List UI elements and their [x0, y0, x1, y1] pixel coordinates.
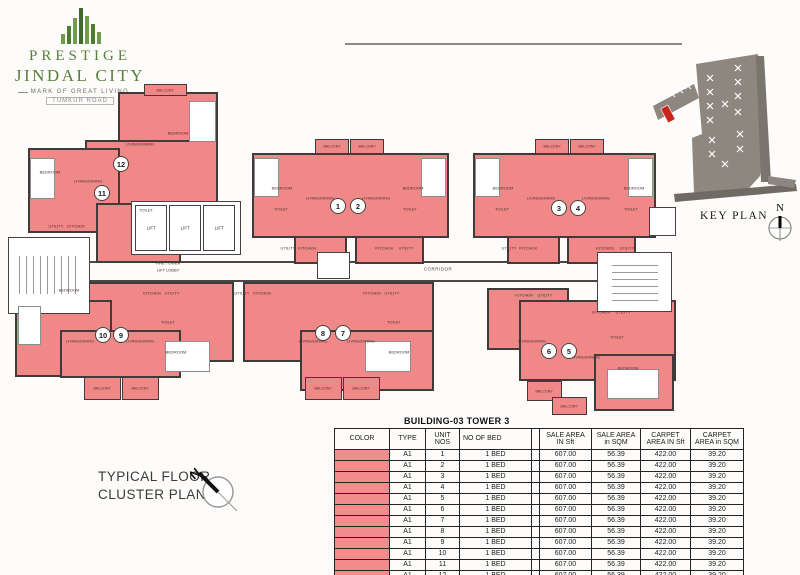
room-label-utility: UTILITY	[538, 293, 553, 298]
table-row: A1121 BED607.0056.39422.0039.20	[335, 571, 744, 575]
balcony-label: BALCONY	[358, 144, 375, 148]
unit-number-marker: 8	[315, 325, 331, 341]
table-cell: 607.00	[540, 483, 592, 494]
table-cell: 39.20	[691, 516, 744, 527]
room-label-kitchen: KITCHEN	[298, 246, 316, 251]
balcony: BALCONY	[350, 139, 384, 154]
table-row: A161 BED607.0056.39422.0039.20	[335, 505, 744, 516]
lift-lobby-room	[317, 252, 350, 279]
room-label-kitchen: KITCHEN	[67, 224, 85, 229]
typical-floor-plan-sheet: PRESTIGE JINDAL CITY MARK OF GREAT LIVIN…	[0, 0, 800, 575]
spacer-cell	[532, 538, 540, 549]
room-label-living: LIVING/DINING	[126, 339, 154, 344]
room-label-utility: UTILITY	[165, 291, 180, 296]
table-row: A131 BED607.0056.39422.0039.20	[335, 472, 744, 483]
stair-steps	[612, 261, 658, 301]
room-label-bedroom: BEDROOM	[168, 131, 189, 136]
unit-number-marker: 2	[350, 198, 366, 214]
room-label-bedroom: BEDROOM	[272, 186, 293, 191]
table-cell: 7	[426, 516, 460, 527]
bed-furniture	[365, 341, 411, 372]
color-swatch-cell	[335, 516, 390, 527]
table-cell: 1 BED	[460, 560, 532, 571]
table-row: A151 BED607.0056.39422.0039.20	[335, 494, 744, 505]
table-row: A1101 BED607.0056.39422.0039.20	[335, 549, 744, 560]
table-row: A141 BED607.0056.39422.0039.20	[335, 483, 744, 494]
column-header: TYPE	[390, 429, 426, 450]
table-cell: A1	[390, 516, 426, 527]
table-cell: 607.00	[540, 516, 592, 527]
table-row: A191 BED607.0056.39422.0039.20	[335, 538, 744, 549]
table-cell: 56.39	[592, 538, 641, 549]
table-cell: 1 BED	[460, 505, 532, 516]
bed-furniture	[475, 158, 500, 197]
color-swatch-cell	[335, 549, 390, 560]
room-label-toilet: TOILET	[161, 320, 175, 325]
table-cell: 39.20	[691, 549, 744, 560]
column-header: COLOR	[335, 429, 390, 450]
table-cell: 39.20	[691, 505, 744, 516]
table-cell: 607.00	[540, 571, 592, 575]
room-label-utility: UTILITY	[399, 246, 414, 251]
unit-block	[252, 153, 449, 238]
table-cell: 1 BED	[460, 450, 532, 461]
table-cell: 56.39	[592, 505, 641, 516]
room-label-toilet: TOILET	[495, 207, 509, 212]
table-cell: A1	[390, 560, 426, 571]
spacer-cell	[532, 461, 540, 472]
room-label-living: LIVING/DINING	[347, 339, 375, 344]
table-cell: 1 BED	[460, 483, 532, 494]
room-label-toilet: TOILET	[610, 335, 624, 340]
unit-number-marker: 6	[541, 343, 557, 359]
table-cell: 56.39	[592, 494, 641, 505]
balcony: BALCONY	[343, 377, 380, 400]
balcony-label: BALCONY	[157, 88, 174, 92]
table-cell: 3	[426, 472, 460, 483]
unit-number-marker: 11	[94, 185, 110, 201]
table-cell: 422.00	[641, 571, 691, 575]
corridor-label: CORRIDOR	[424, 267, 453, 272]
room-label-kitchen: KITCHEN	[363, 291, 381, 296]
lift-shaft: LIFT	[169, 205, 201, 251]
room-label-kitchen: KITCHEN	[253, 291, 271, 296]
table-cell: 8	[426, 527, 460, 538]
color-swatch-cell	[335, 527, 390, 538]
room-label-toilet: TOILET	[139, 208, 153, 213]
room-label-kitchen: KITCHEN	[519, 246, 537, 251]
color-swatch-cell	[335, 483, 390, 494]
room-label-living: LIVING/DINING	[527, 196, 555, 201]
service-duct	[649, 207, 676, 236]
column-header: UNIT NOS	[426, 429, 460, 450]
lift-label: LIFT	[180, 226, 189, 231]
table-cell: 422.00	[641, 527, 691, 538]
bed-furniture	[30, 158, 55, 199]
spacer-cell	[532, 516, 540, 527]
spacer-cell	[532, 494, 540, 505]
spacer-cell	[532, 483, 540, 494]
unit-number-marker: 4	[570, 200, 586, 216]
lift-label: LIFT	[214, 226, 223, 231]
balcony: BALCONY	[305, 377, 342, 400]
room-label-living: LIVING/DINING	[126, 142, 154, 147]
table-cell: A1	[390, 472, 426, 483]
table-cell: 607.00	[540, 505, 592, 516]
table-cell: 607.00	[540, 527, 592, 538]
color-swatch-cell	[335, 494, 390, 505]
staircase-left	[8, 237, 90, 314]
room-label-living: LIVING/DINING	[306, 196, 334, 201]
color-swatch-cell	[335, 472, 390, 483]
room-label-bedroom: BEDROOM	[389, 350, 410, 355]
table-cell: 607.00	[540, 472, 592, 483]
table-cell: A1	[390, 461, 426, 472]
table-cell: 1	[426, 450, 460, 461]
room-label-kitchen: KITCHEN	[592, 310, 610, 315]
spacer-cell	[532, 527, 540, 538]
room-label-utility: UTILITY	[616, 310, 631, 315]
table-cell: 1 BED	[460, 472, 532, 483]
table-cell: 2	[426, 461, 460, 472]
balcony: BALCONY	[315, 139, 349, 154]
table-cell: 422.00	[641, 538, 691, 549]
table-cell: 39.20	[691, 527, 744, 538]
table-cell: 422.00	[641, 450, 691, 461]
fire-tower-label-line2: LIFT LOBBY	[157, 268, 180, 273]
lift-shaft: LIFT	[203, 205, 235, 251]
table-cell: 1 BED	[460, 494, 532, 505]
table-cell: A1	[390, 538, 426, 549]
table-cell: 39.20	[691, 494, 744, 505]
unit-number-marker: 12	[113, 156, 129, 172]
balcony-label: BALCONY	[132, 386, 149, 390]
balcony: BALCONY	[535, 139, 569, 154]
table-cell: 9	[426, 538, 460, 549]
table-row: A111 BED607.0056.39422.0039.20	[335, 450, 744, 461]
table-cell: 56.39	[592, 461, 641, 472]
unit-number-marker: 7	[335, 325, 351, 341]
table-cell: 1 BED	[460, 516, 532, 527]
balcony: BALCONY	[552, 397, 587, 415]
column-header: NO OF BED	[460, 429, 532, 450]
column-header: SALE AREA IN Sft	[540, 429, 592, 450]
room-label-bedroom: BEDROOM	[40, 170, 61, 175]
room-label-kitchen: KITCHEN	[515, 293, 533, 298]
room-label-toilet: TOILET	[387, 320, 401, 325]
table-cell: 39.20	[691, 472, 744, 483]
column-header: CARPET AREA IN Sft	[641, 429, 691, 450]
table-cell: 422.00	[641, 505, 691, 516]
room-label-toilet: TOILET	[624, 207, 638, 212]
table-cell: 1 BED	[460, 549, 532, 560]
room-label-utility: UTILITY	[49, 224, 64, 229]
table-row: A121 BED607.0056.39422.0039.20	[335, 461, 744, 472]
table-row: A181 BED607.0056.39422.0039.20	[335, 527, 744, 538]
table-cell: A1	[390, 483, 426, 494]
room-label-kitchen: KITCHEN	[143, 291, 161, 296]
room-label-bedroom: BEDROOM	[166, 350, 187, 355]
room-label-living: LIVING/DINING	[582, 196, 610, 201]
table-cell: 39.20	[691, 483, 744, 494]
balcony-label: BALCONY	[94, 386, 111, 390]
table-cell: 10	[426, 549, 460, 560]
balcony-label: BALCONY	[353, 386, 370, 390]
color-swatch-cell	[335, 571, 390, 575]
room-label-utility: UTILITY	[620, 246, 635, 251]
balcony-label: BALCONY	[578, 144, 595, 148]
column-header: CARPET AREA in SQM	[691, 429, 744, 450]
table-cell: 39.20	[691, 538, 744, 549]
unit-area-table: COLORTYPEUNIT NOSNO OF BEDSALE AREA IN S…	[334, 428, 744, 575]
column-spacer	[532, 429, 540, 450]
table-cell: 39.20	[691, 560, 744, 571]
table-cell: 56.39	[592, 516, 641, 527]
balcony-label: BALCONY	[536, 389, 553, 393]
unit-number-marker: 3	[551, 200, 567, 216]
color-swatch-cell	[335, 461, 390, 472]
table-cell: 4	[426, 483, 460, 494]
room-label-kitchen: KITCHEN	[375, 246, 393, 251]
room-label-living: LIVING/DINING	[572, 355, 600, 360]
table-cell: 607.00	[540, 461, 592, 472]
staircase-right	[597, 252, 672, 312]
table-cell: 1 BED	[460, 527, 532, 538]
balcony-label: BALCONY	[323, 144, 340, 148]
table-cell: 56.39	[592, 450, 641, 461]
table-cell: A1	[390, 571, 426, 575]
room-label-bedroom: BEDROOM	[493, 186, 514, 191]
table-cell: 422.00	[641, 494, 691, 505]
table-cell: A1	[390, 527, 426, 538]
bed-furniture	[165, 341, 210, 372]
room-label-utility: UTILITY	[385, 291, 400, 296]
room-label-living: LIVING/DINING	[66, 339, 94, 344]
room-label-toilet: TOILET	[403, 207, 417, 212]
spacer-cell	[532, 571, 540, 575]
balcony: BALCONY	[570, 139, 604, 154]
balcony-label: BALCONY	[561, 404, 578, 408]
spacer-cell	[532, 505, 540, 516]
table-cell: 1 BED	[460, 461, 532, 472]
bed-furniture	[18, 306, 41, 345]
room-label-kitchen: KITCHEN	[596, 246, 614, 251]
table-cell: 56.39	[592, 560, 641, 571]
plan-north-compass-icon: N	[190, 462, 244, 516]
table-cell: A1	[390, 549, 426, 560]
spacer-cell	[532, 472, 540, 483]
room-label-bedroom: BEDROOM	[59, 288, 80, 293]
table-cell: 11	[426, 560, 460, 571]
table-cell: A1	[390, 450, 426, 461]
room-label-toilet: TOILET	[274, 207, 288, 212]
room-label-living: LIVING/DINING	[518, 339, 546, 344]
table-cell: 422.00	[641, 483, 691, 494]
bed-furniture	[628, 158, 653, 197]
table-cell: 607.00	[540, 450, 592, 461]
table-title: BUILDING-03 TOWER 3	[404, 416, 510, 426]
room-label-living: LIVING/DINING	[74, 179, 102, 184]
table-cell: 39.20	[691, 571, 744, 575]
unit-number-marker: 5	[561, 343, 577, 359]
room-label-bedroom: BEDROOM	[403, 186, 424, 191]
table-cell: A1	[390, 505, 426, 516]
unit-number-marker: 9	[113, 327, 129, 343]
table-cell: 56.39	[592, 549, 641, 560]
color-swatch-cell	[335, 505, 390, 516]
lift-label: LIFT	[146, 226, 155, 231]
bed-furniture	[421, 158, 446, 197]
balcony: BALCONY	[122, 377, 159, 400]
color-swatch-cell	[335, 560, 390, 571]
unit-number-marker: 10	[95, 327, 111, 343]
table-cell: 39.20	[691, 461, 744, 472]
bed-furniture	[607, 369, 659, 399]
table-cell: 56.39	[592, 472, 641, 483]
table-row: A1111 BED607.0056.39422.0039.20	[335, 560, 744, 571]
spacer-cell	[532, 560, 540, 571]
table-cell: 5	[426, 494, 460, 505]
room-label-bedroom: BEDROOM	[618, 366, 639, 371]
room-label-utility: UTILITY	[235, 291, 250, 296]
balcony: BALCONY	[144, 84, 187, 96]
unit-number-marker: 1	[330, 198, 346, 214]
color-swatch-cell	[335, 538, 390, 549]
spacer-cell	[532, 549, 540, 560]
balcony-label: BALCONY	[543, 144, 560, 148]
table-cell: 56.39	[592, 571, 641, 575]
table-cell: 422.00	[641, 472, 691, 483]
table-cell: 39.20	[691, 450, 744, 461]
color-swatch-cell	[335, 450, 390, 461]
room-label-bedroom: BEDROOM	[624, 186, 645, 191]
room-label-living: LIVING/DINING	[362, 196, 390, 201]
table-cell: 56.39	[592, 483, 641, 494]
table-cell: 422.00	[641, 461, 691, 472]
balcony-label: BALCONY	[315, 386, 332, 390]
table-row: A171 BED607.0056.39422.0039.20	[335, 516, 744, 527]
table-cell: 1 BED	[460, 538, 532, 549]
bed-furniture	[189, 101, 216, 142]
table-cell: 607.00	[540, 549, 592, 560]
column-header: SALE AREA in SQM	[592, 429, 641, 450]
spacer-cell	[532, 450, 540, 461]
table-cell: 422.00	[641, 549, 691, 560]
table-cell: 607.00	[540, 538, 592, 549]
table-cell: 12	[426, 571, 460, 575]
table-cell: 607.00	[540, 560, 592, 571]
room-label-utility: UTILITY	[281, 246, 296, 251]
table-cell: 6	[426, 505, 460, 516]
table-cell: 422.00	[641, 516, 691, 527]
table-cell: 1 BED	[460, 571, 532, 575]
table-cell: 607.00	[540, 494, 592, 505]
table-cell: 422.00	[641, 560, 691, 571]
room-label-utility: UTILITY	[502, 246, 517, 251]
fire-tower-label-line1: FIRE TOWER	[156, 261, 181, 266]
bed-furniture	[254, 158, 279, 197]
balcony: BALCONY	[84, 377, 121, 400]
table-cell: 56.39	[592, 527, 641, 538]
table-cell: A1	[390, 494, 426, 505]
